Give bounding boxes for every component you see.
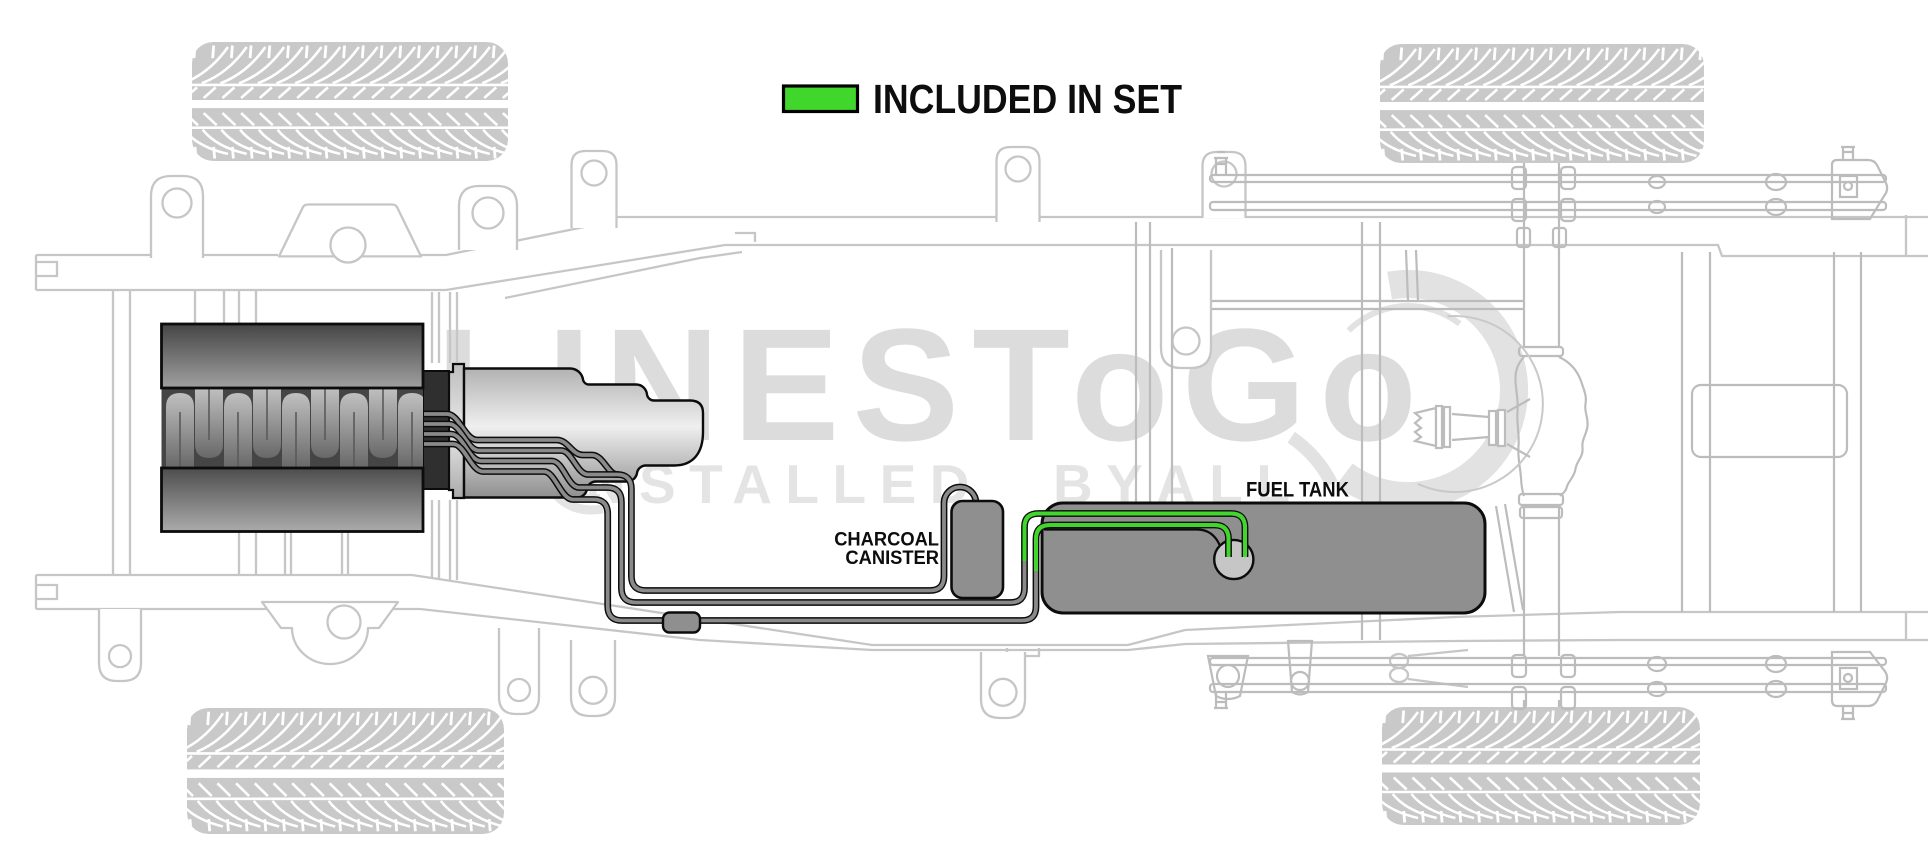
svg-text:CANISTER: CANISTER	[845, 548, 939, 570]
svg-text:FUEL TANK: FUEL TANK	[1246, 478, 1350, 501]
svg-text:INCLUDED IN SET: INCLUDED IN SET	[873, 77, 1182, 123]
